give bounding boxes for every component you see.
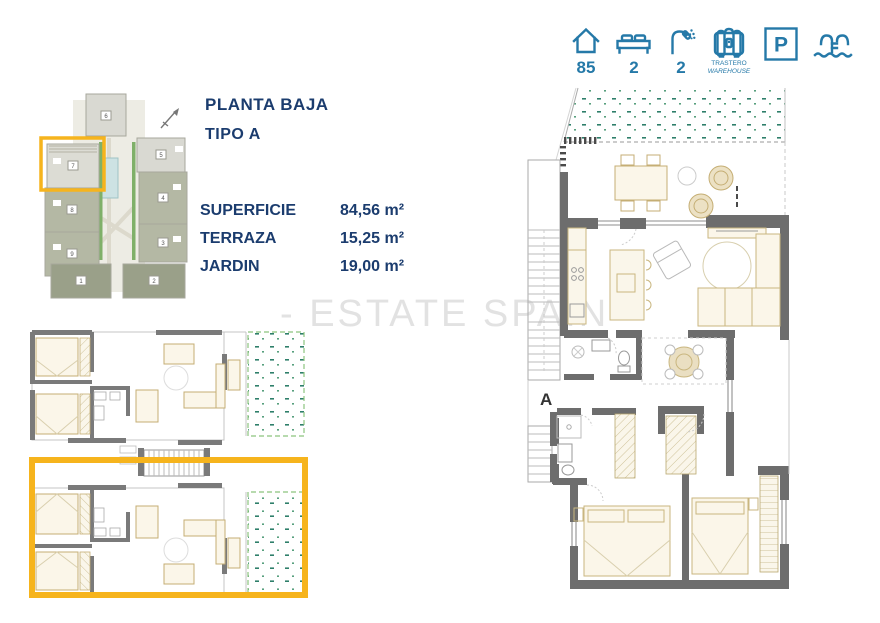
feature-icon-strip: 85 2 2 (563, 26, 863, 76)
compass-arrow-icon (161, 108, 179, 128)
parking-feature: P (755, 26, 807, 76)
apartment-plan-tipo-a: A (520, 82, 865, 623)
area-feature: 85 (563, 26, 609, 76)
terrace-furniture (615, 155, 733, 218)
spec-label: SUPERFICIE (200, 202, 340, 220)
building-floorplan (28, 330, 310, 622)
parking-letter: P (774, 34, 788, 57)
wardrobe-hall (615, 414, 635, 478)
storage-label: TRASTERO WAREHOUSE (708, 60, 751, 76)
bathroom-1 (572, 340, 630, 372)
spec-value: 15,25 m² (340, 230, 404, 248)
pool-ladder-icon (813, 30, 853, 60)
spec-row: JARDIN 19,00 m² (200, 258, 430, 276)
upper-apartment-unit (30, 330, 304, 445)
site-plan: 6 7 5 4 8 3 9 1 2 (33, 88, 191, 302)
bathroom-2 (557, 416, 581, 475)
pool-feature (807, 30, 859, 76)
spec-label: TERRAZA (200, 230, 340, 248)
spec-row: SUPERFICIE 84,56 m² (200, 202, 430, 220)
plan-title-line2: TIPO A (205, 126, 329, 144)
spec-row: TERRAZA 15,25 m² (200, 230, 430, 248)
trastero-suitcase-icon (711, 27, 747, 58)
spec-value: 19,00 m² (340, 258, 404, 276)
plan-title: PLANTA BAJA TIPO A (205, 95, 329, 144)
bed-icon (615, 29, 653, 56)
bedroom-2-bed (692, 498, 758, 574)
patio (642, 338, 726, 384)
bathrooms-feature: 2 (659, 26, 703, 76)
bathrooms-value: 2 (676, 59, 685, 76)
lower-apartment-unit (30, 483, 304, 598)
wardrobe-bedroom2 (760, 476, 778, 572)
area-value: 85 (577, 59, 596, 76)
spec-label: JARDIN (200, 258, 340, 276)
wardrobe-center (666, 416, 696, 474)
parking-icon: P (763, 26, 799, 62)
garden-area (556, 88, 785, 222)
specs-table: SUPERFICIE 84,56 m² TERRAZA 15,25 m² JAR… (200, 202, 430, 286)
storage-feature: TRASTERO WAREHOUSE (703, 27, 755, 76)
spec-value: 84,56 m² (340, 202, 404, 220)
unit-label: A (540, 390, 552, 409)
bedrooms-value: 2 (629, 59, 638, 76)
floorplan-sheet: 85 2 2 (0, 0, 880, 623)
bedroom-1-bed (574, 506, 670, 576)
kitchen-living-furniture (568, 228, 780, 326)
plan-title-line1: PLANTA BAJA (205, 95, 329, 115)
house-icon (570, 26, 602, 56)
bedrooms-feature: 2 (609, 29, 659, 76)
shower-icon (666, 26, 696, 56)
